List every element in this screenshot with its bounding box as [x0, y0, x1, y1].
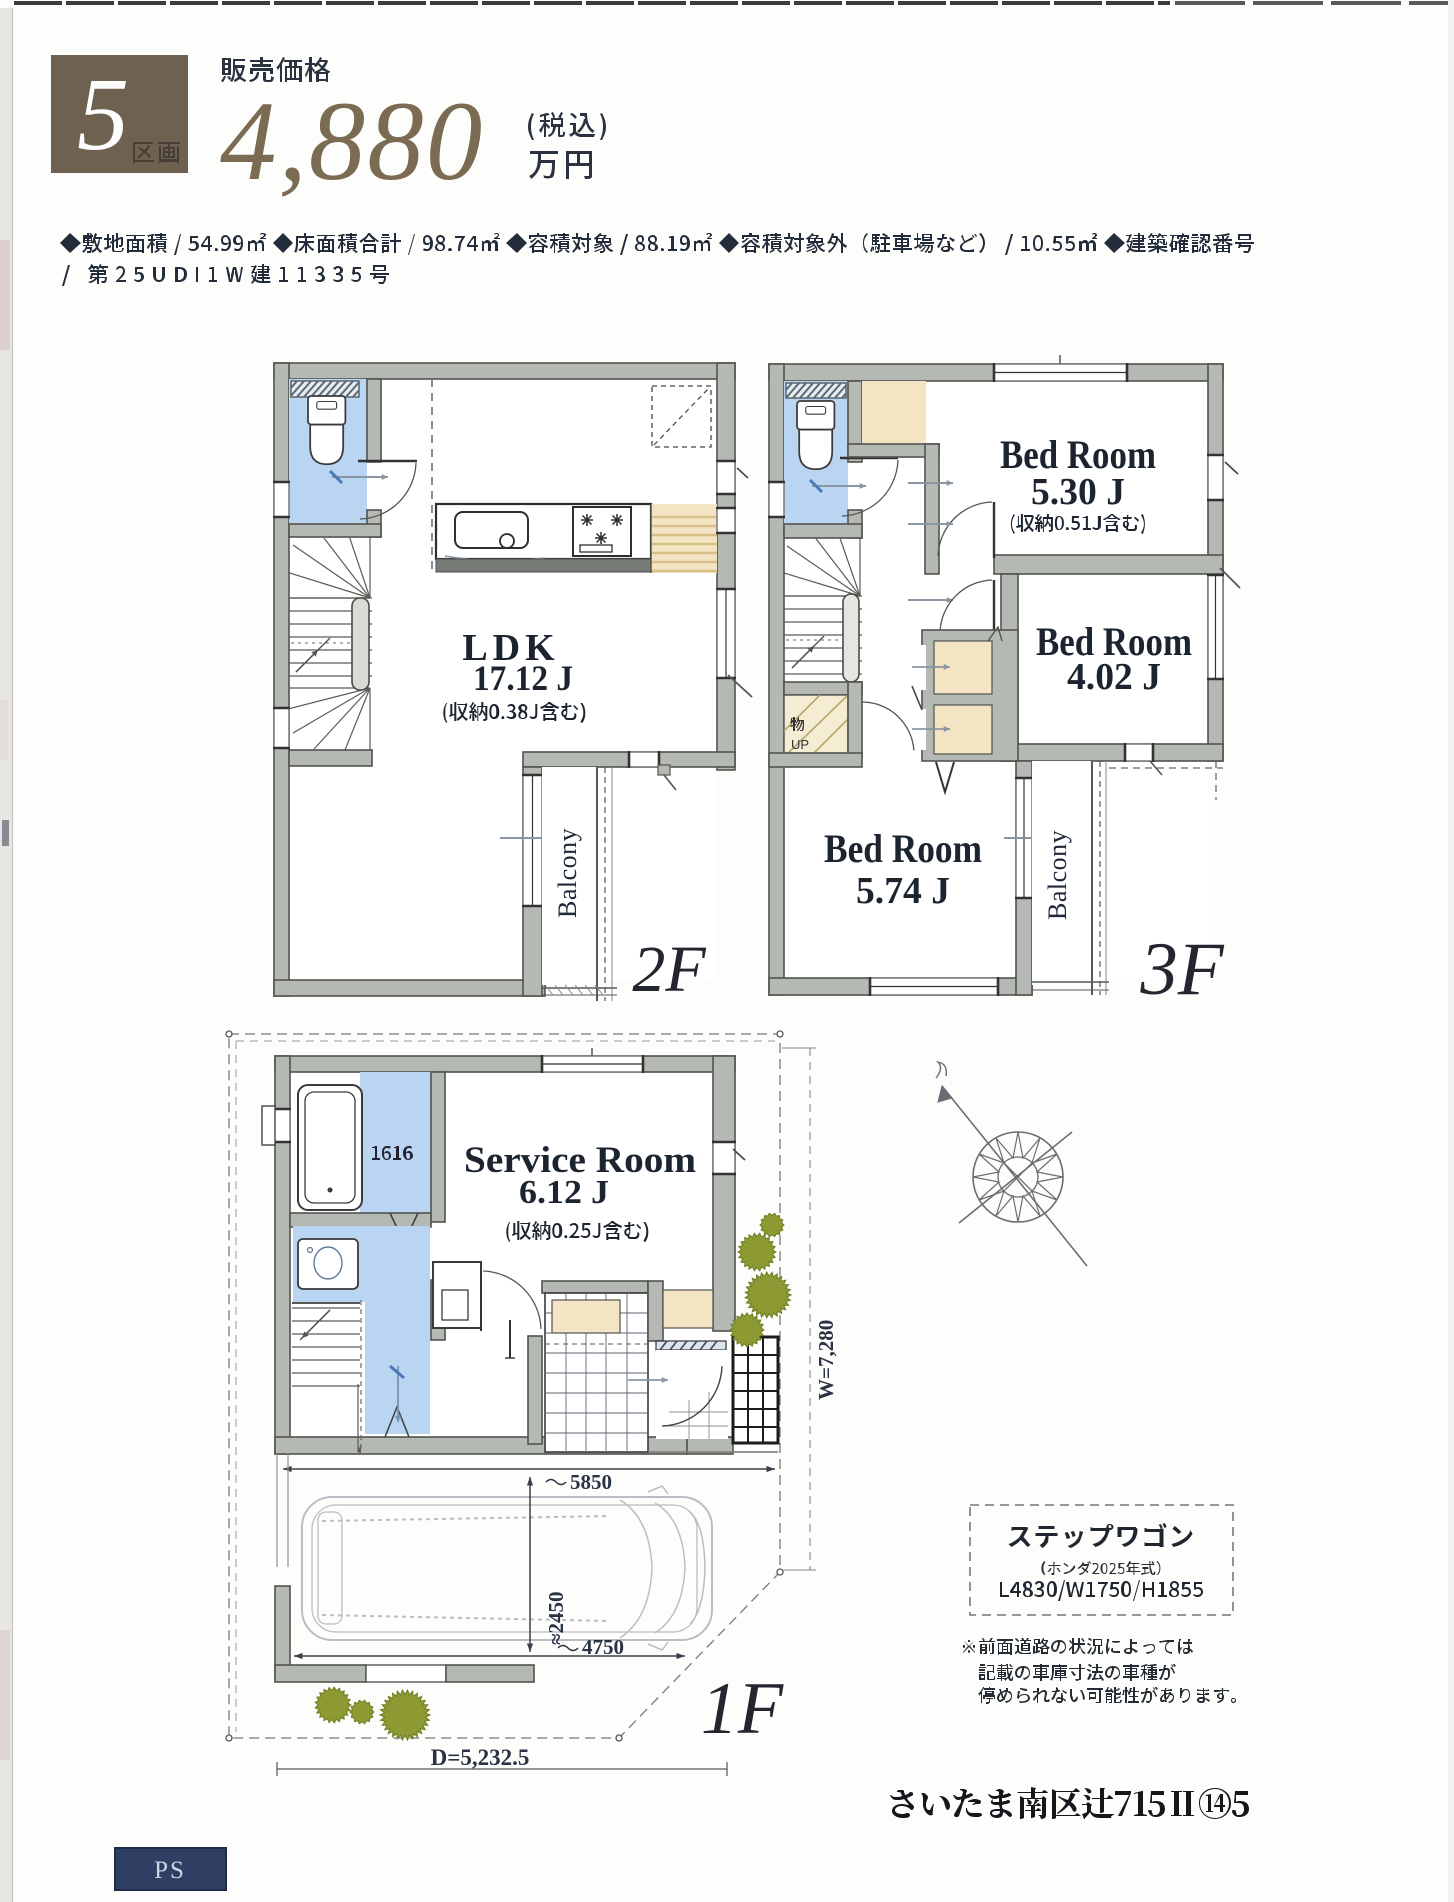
- svg-text:5.74 J: 5.74 J: [856, 870, 950, 912]
- svg-text:UP: UP: [791, 737, 809, 752]
- svg-text:Balcony: Balcony: [553, 828, 582, 918]
- svg-text:Bed Room: Bed Room: [824, 826, 982, 871]
- svg-text:D=5,232.5: D=5,232.5: [431, 1745, 530, 1770]
- svg-text:4.02 J: 4.02 J: [1067, 656, 1161, 698]
- svg-text:6.12 J: 6.12 J: [519, 1174, 609, 1211]
- svg-text:≈2450: ≈2450: [544, 1591, 568, 1645]
- svg-text:5: 5: [77, 57, 129, 172]
- svg-text:W=7,280: W=7,280: [814, 1320, 838, 1400]
- svg-text:2F: 2F: [632, 933, 706, 1006]
- svg-text:Balcony: Balcony: [1043, 830, 1072, 920]
- svg-text:4750: 4750: [582, 1635, 624, 1659]
- svg-text:17.12 J: 17.12 J: [473, 658, 573, 698]
- svg-text:5.30 J: 5.30 J: [1031, 471, 1125, 513]
- svg-text:1F: 1F: [701, 1668, 784, 1750]
- svg-text:5850: 5850: [570, 1470, 612, 1494]
- svg-text:4,880: 4,880: [220, 79, 484, 204]
- svg-text:3F: 3F: [1139, 928, 1225, 1011]
- svg-text:PS: PS: [154, 1857, 186, 1884]
